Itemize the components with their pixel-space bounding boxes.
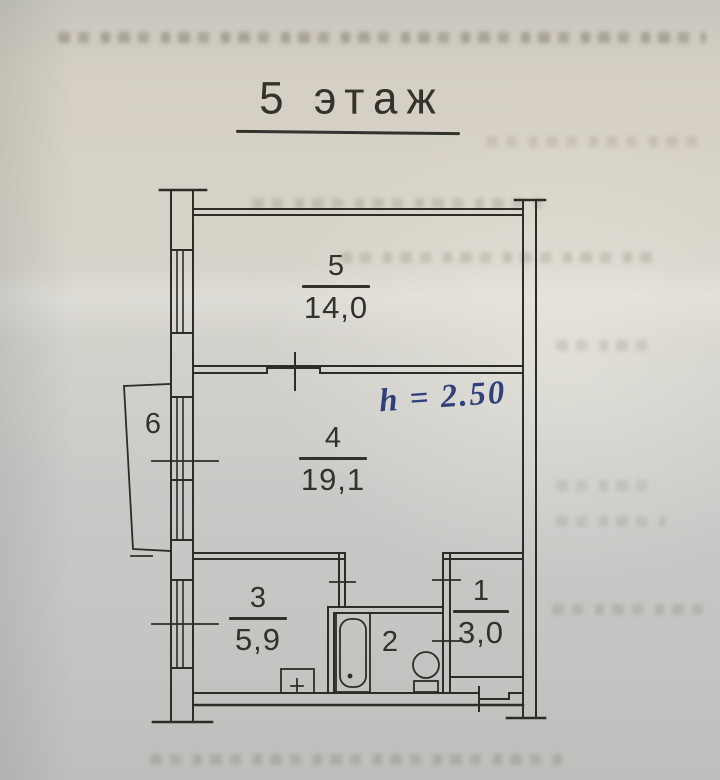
floor-plan-drawing (0, 0, 720, 780)
room-area: 14,0 (304, 288, 368, 323)
stove-icon (281, 669, 314, 693)
room-area: 19,1 (301, 460, 365, 495)
room-label-4: 4 19,1 (299, 424, 367, 495)
room-label-2: 2 (382, 628, 398, 657)
scanned-page: 5 этаж (0, 0, 720, 780)
room-label-1: 1 3,0 (453, 577, 509, 648)
room-area: 5,9 (235, 620, 281, 655)
room-label-3: 3 5,9 (229, 584, 287, 655)
left-exterior-wall (152, 190, 218, 722)
room-number: 1 (473, 577, 489, 610)
room-number: 6 (145, 410, 161, 439)
window-glazing-lines (177, 250, 183, 668)
room-label-6: 6 (145, 410, 161, 439)
bathtub-icon (336, 613, 370, 692)
room-number: 5 (328, 252, 344, 285)
top-exterior-wall (194, 209, 523, 215)
room-number: 4 (325, 424, 341, 457)
room-number: 2 (382, 628, 398, 657)
bottom-exterior-wall (194, 677, 523, 711)
room-number: 3 (250, 584, 266, 617)
room-area: 3,0 (458, 613, 504, 648)
right-exterior-wall (507, 200, 545, 718)
room-label-5: 5 14,0 (302, 252, 370, 323)
toilet-icon (413, 652, 439, 692)
